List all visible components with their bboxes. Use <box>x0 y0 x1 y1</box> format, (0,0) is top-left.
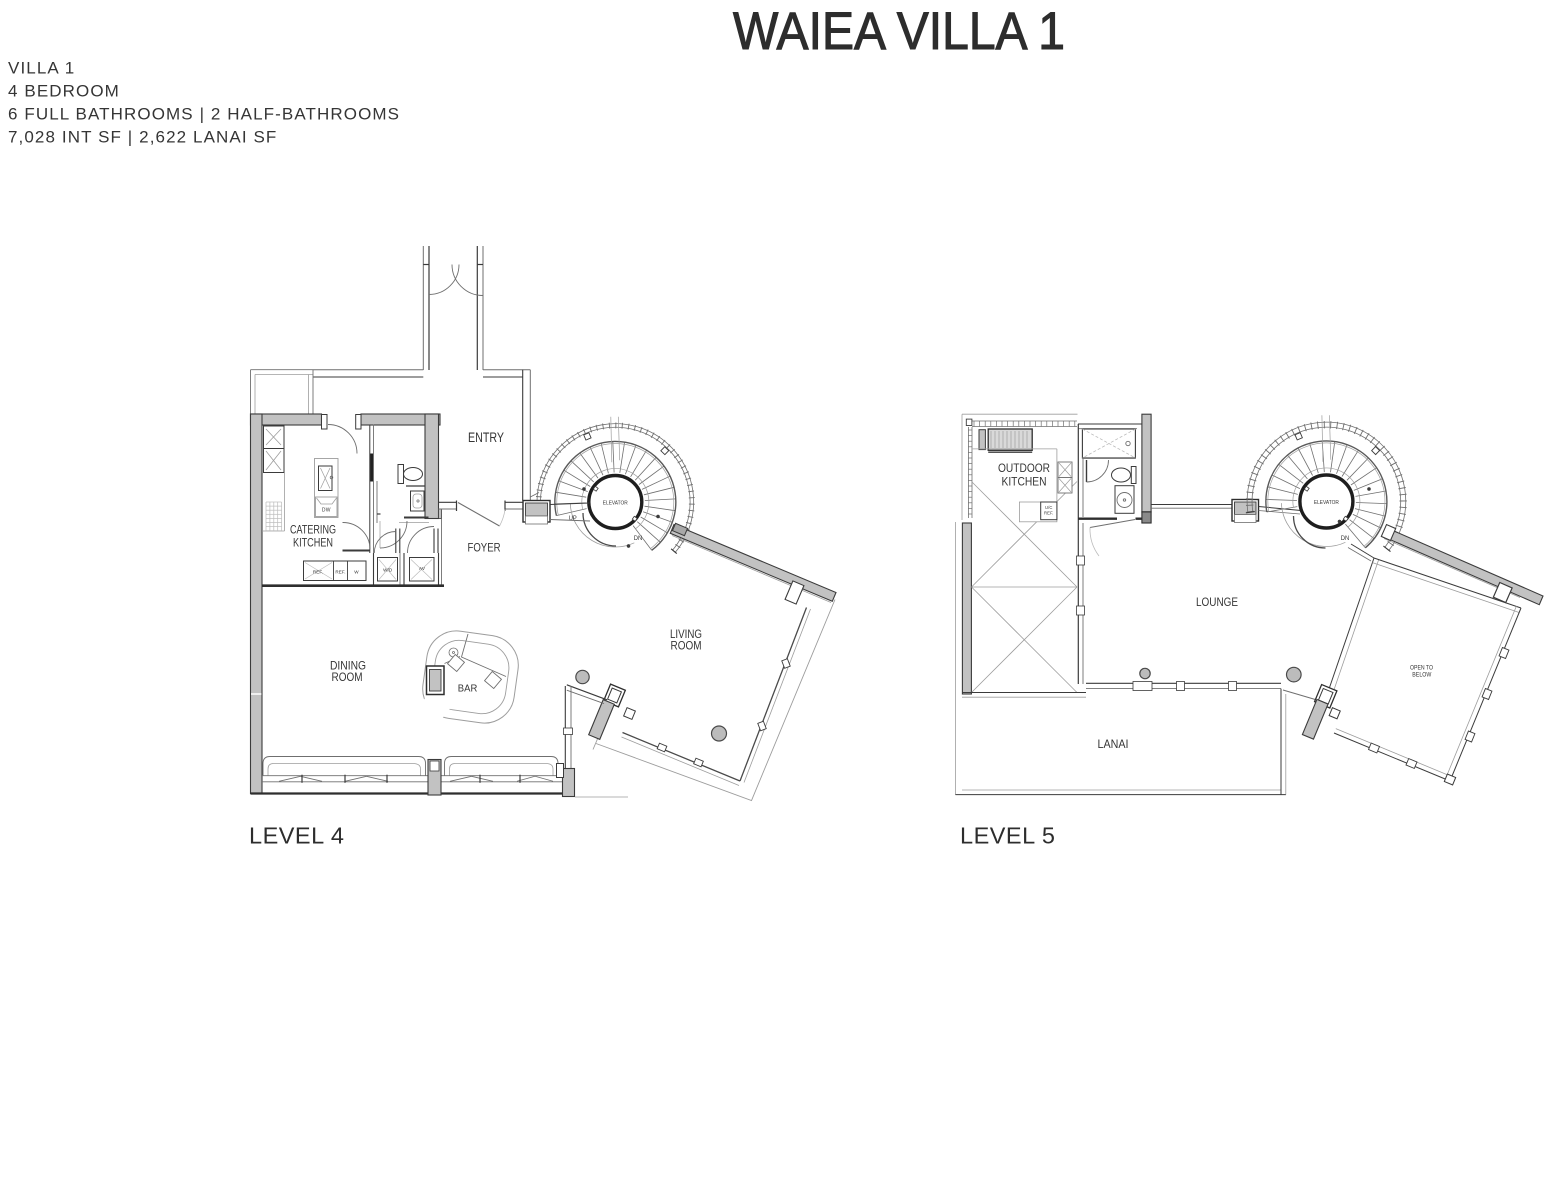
svg-text:REF.: REF. <box>335 570 345 575</box>
svg-text:LEVEL 4: LEVEL 4 <box>249 823 344 849</box>
svg-text:REF.: REF. <box>313 570 323 575</box>
svg-text:W: W <box>354 570 359 575</box>
svg-text:4 BEDROOM: 4 BEDROOM <box>8 82 120 101</box>
svg-text:AV: AV <box>419 566 426 571</box>
svg-text:7,028 INT SF | 2,622 LANAI SF: 7,028 INT SF | 2,622 LANAI SF <box>8 128 277 147</box>
svg-text:ELEVATOR: ELEVATOR <box>1314 500 1339 506</box>
svg-text:ROOM: ROOM <box>332 670 363 684</box>
svg-text:ROOM: ROOM <box>671 639 702 653</box>
svg-text:OUTDOOR: OUTDOOR <box>998 461 1050 475</box>
svg-text:U/C: U/C <box>1045 505 1053 510</box>
svg-text:LANAI: LANAI <box>1098 737 1129 751</box>
svg-text:REF.: REF. <box>1044 511 1053 516</box>
svg-text:CATERING: CATERING <box>290 525 336 537</box>
svg-text:ENTRY: ENTRY <box>468 429 504 445</box>
svg-text:ELEVATOR: ELEVATOR <box>603 501 628 507</box>
svg-text:DN: DN <box>1341 536 1350 542</box>
svg-text:LOUNGE: LOUNGE <box>1196 595 1238 609</box>
svg-text:VILLA 1: VILLA 1 <box>8 59 75 78</box>
svg-text:KITCHEN: KITCHEN <box>1002 475 1047 489</box>
svg-text:DW: DW <box>322 508 331 514</box>
svg-text:UP: UP <box>569 516 577 522</box>
svg-text:6 FULL BATHROOMS | 2 HALF-BATH: 6 FULL BATHROOMS | 2 HALF-BATHROOMS <box>8 105 400 124</box>
svg-text:LEVEL 5: LEVEL 5 <box>960 823 1055 849</box>
svg-text:WAIEA VILLA 1: WAIEA VILLA 1 <box>733 2 1065 61</box>
svg-text:FOYER: FOYER <box>468 543 501 555</box>
svg-text:OPEN TO: OPEN TO <box>1410 666 1433 672</box>
svg-text:BAR: BAR <box>458 683 478 695</box>
svg-text:DN: DN <box>634 536 643 542</box>
svg-text:W/D: W/D <box>383 568 393 573</box>
svg-text:KITCHEN: KITCHEN <box>293 538 333 550</box>
svg-text:BELOW: BELOW <box>1412 673 1431 679</box>
